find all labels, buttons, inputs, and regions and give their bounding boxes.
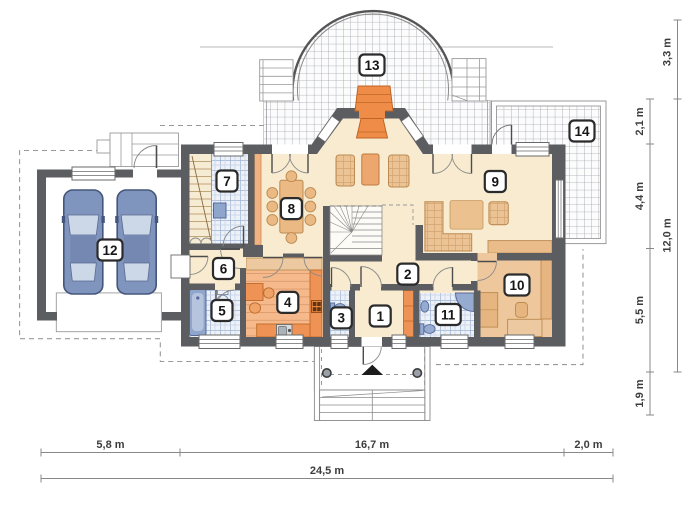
svg-text:3: 3	[338, 311, 346, 326]
svg-text:12: 12	[102, 243, 117, 258]
svg-text:14: 14	[574, 124, 590, 139]
svg-text:1: 1	[376, 309, 384, 324]
svg-text:5,8 m: 5,8 m	[96, 439, 124, 451]
svg-text:3,3 m: 3,3 m	[662, 38, 674, 66]
svg-text:11: 11	[441, 307, 456, 322]
svg-text:6: 6	[220, 261, 228, 276]
svg-text:13: 13	[364, 58, 380, 73]
svg-text:9: 9	[492, 174, 500, 189]
svg-text:10: 10	[509, 278, 524, 293]
svg-text:12,0 m: 12,0 m	[662, 218, 674, 252]
svg-text:16,7 m: 16,7 m	[355, 439, 389, 451]
svg-text:8: 8	[288, 201, 296, 216]
svg-text:4: 4	[284, 295, 292, 310]
svg-text:4,4 m: 4,4 m	[634, 182, 646, 210]
svg-text:2,0 m: 2,0 m	[574, 439, 602, 451]
svg-text:2: 2	[404, 267, 412, 282]
svg-text:5: 5	[218, 303, 226, 318]
svg-text:2,1 m: 2,1 m	[634, 107, 646, 135]
svg-text:7: 7	[223, 174, 231, 189]
svg-text:5,5 m: 5,5 m	[634, 296, 646, 324]
svg-text:1,9 m: 1,9 m	[634, 379, 646, 407]
svg-text:24,5 m: 24,5 m	[310, 465, 344, 477]
